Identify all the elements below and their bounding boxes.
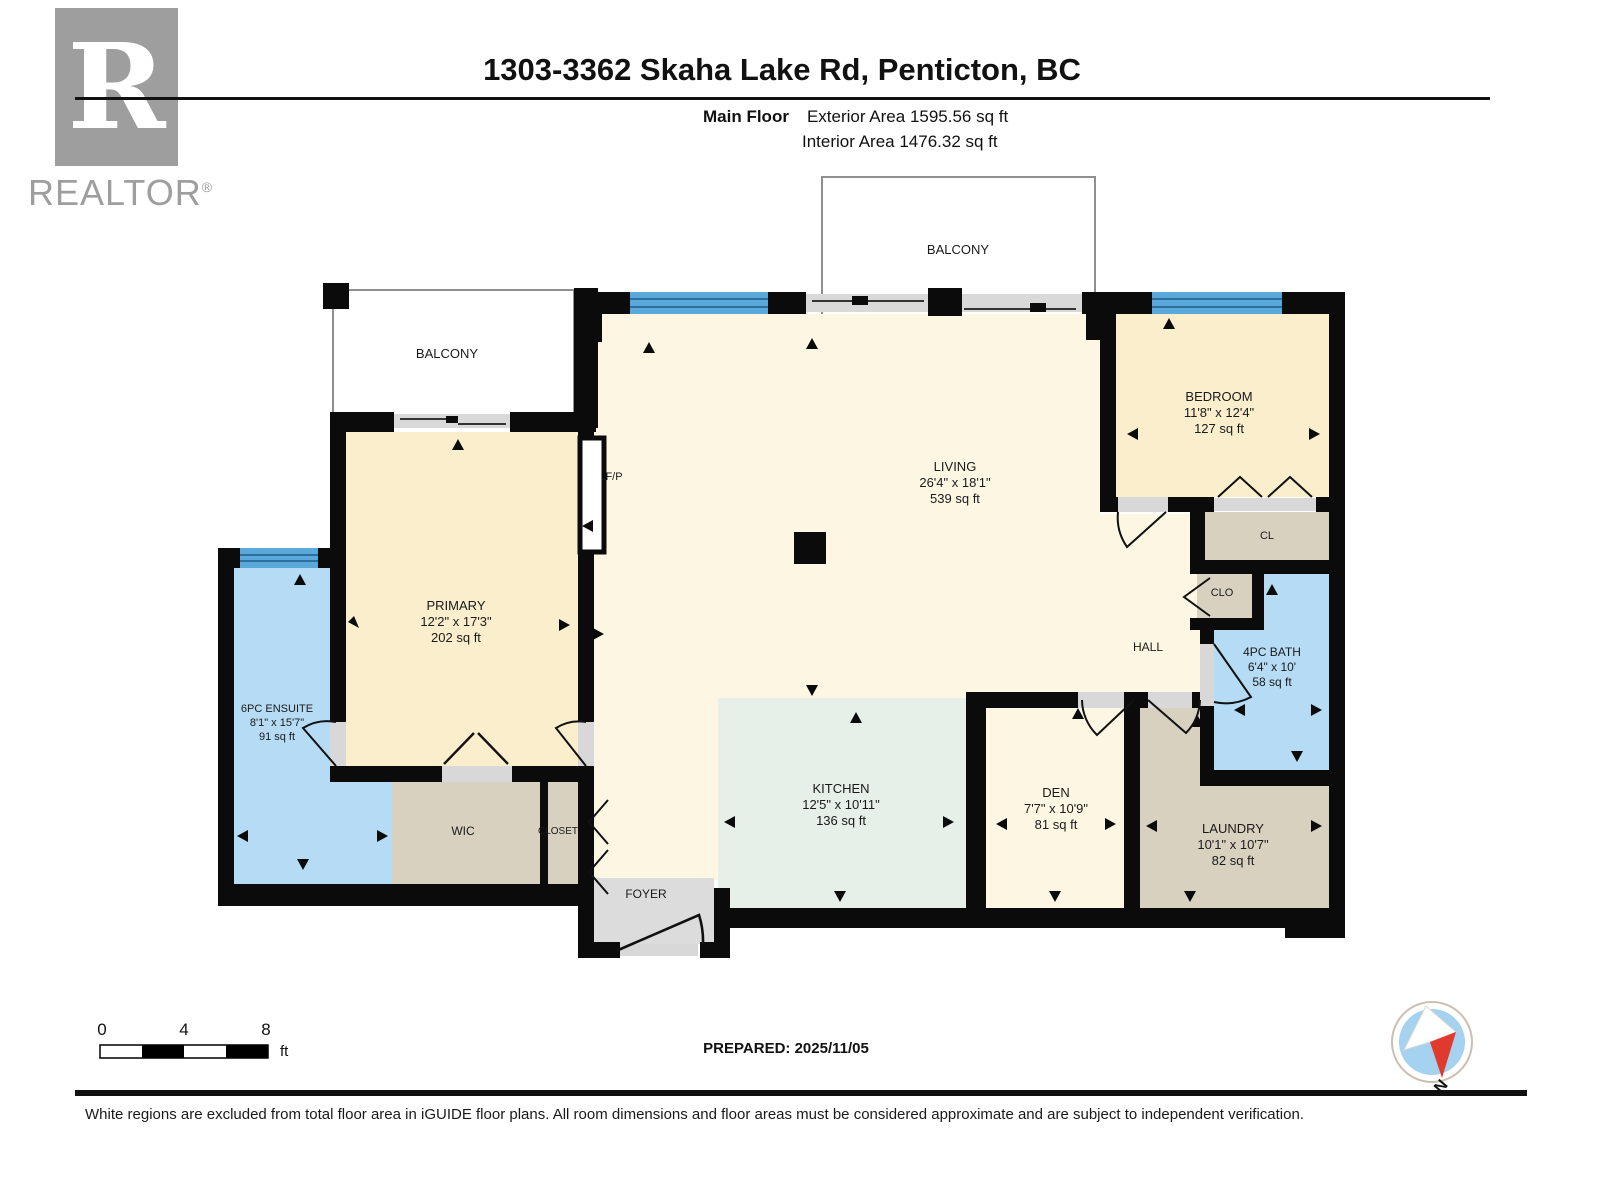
header-rule xyxy=(75,97,1490,100)
room-label-living: LIVING 26'4" x 18'1" 539 sq ft xyxy=(919,459,990,507)
room-name: CLOSET xyxy=(538,826,578,838)
room-label-hall: HALL xyxy=(1133,640,1163,655)
room-name: CL xyxy=(1260,529,1274,543)
room-dims: 26'4" x 18'1" xyxy=(919,475,990,491)
room-label-closet: CLOSET xyxy=(538,826,578,838)
disclaimer-text: White regions are excluded from total fl… xyxy=(85,1106,1545,1123)
floor-label: Main Floor xyxy=(703,107,789,126)
room-dims: 12'5" x 10'11" xyxy=(802,797,880,813)
room-area: 539 sq ft xyxy=(919,491,990,507)
realtor-logo-wordmark: REALTOR® xyxy=(28,172,213,214)
room-name: KITCHEN xyxy=(802,781,880,797)
room-dims: 7'7" x 10'9" xyxy=(1024,801,1088,817)
room-label-fireplace: F/P xyxy=(605,470,622,484)
room-name: F/P xyxy=(605,470,622,484)
room-name: LAUNDRY xyxy=(1197,821,1268,837)
scale-bar-graphic xyxy=(100,1045,268,1058)
floor-summary-line2: Interior Area 1476.32 sq ft xyxy=(802,132,998,152)
room-label-balcony-left: BALCONY xyxy=(416,346,478,362)
room-area: 82 sq ft xyxy=(1197,853,1268,869)
room-name: WIC xyxy=(451,824,474,839)
room-name: DEN xyxy=(1024,785,1088,801)
room-label-kitchen: KITCHEN 12'5" x 10'11" 136 sq ft xyxy=(802,781,880,829)
room-area: 127 sq ft xyxy=(1184,421,1254,437)
scale-unit: ft xyxy=(280,1043,288,1060)
room-name: 6PC ENSUITE xyxy=(241,702,313,716)
room-area: 58 sq ft xyxy=(1243,675,1301,690)
room-name: CLO xyxy=(1211,586,1234,600)
room-name: 4PC BATH xyxy=(1243,645,1301,660)
registered-mark: ® xyxy=(202,179,213,195)
room-label-balcony-top: BALCONY xyxy=(927,242,989,258)
room-dims: 12'2" x 17'3" xyxy=(420,614,491,630)
exterior-area: Exterior Area 1595.56 sq ft xyxy=(807,107,1008,126)
page-title: 1303-3362 Skaha Lake Rd, Penticton, BC xyxy=(483,52,1081,88)
room-area: 136 sq ft xyxy=(802,813,880,829)
room-area: 202 sq ft xyxy=(420,630,491,646)
room-dims: 11'8" x 12'4" xyxy=(1184,405,1254,421)
room-dims: 10'1" x 10'7" xyxy=(1197,837,1268,853)
room-label-cl: CL xyxy=(1260,529,1274,543)
room-label-bedroom: BEDROOM 11'8" x 12'4" 127 sq ft xyxy=(1184,389,1254,437)
scale-tick-0: 0 xyxy=(97,1020,106,1040)
floor-summary-line1: Main FloorExterior Area 1595.56 sq ft xyxy=(703,107,1008,127)
room-name: BALCONY xyxy=(927,242,989,258)
floor-plan-drawing xyxy=(0,0,1600,1200)
scale-tick-8: 8 xyxy=(261,1020,270,1040)
room-label-wic: WIC xyxy=(451,824,474,839)
room-dims: 6'4" x 10' xyxy=(1243,660,1301,675)
room-name: BEDROOM xyxy=(1184,389,1254,405)
room-name: FOYER xyxy=(625,887,666,902)
room-label-primary: PRIMARY 12'2" x 17'3" 202 sq ft xyxy=(420,598,491,646)
footer-rule xyxy=(75,1090,1527,1096)
fireplace-niche xyxy=(580,438,604,552)
room-name: BALCONY xyxy=(416,346,478,362)
floor-plan-page: R REALTOR® 1303-3362 Skaha Lake Rd, Pent… xyxy=(0,0,1600,1200)
room-label-clo: CLO xyxy=(1211,586,1234,600)
room-label-bath: 4PC BATH 6'4" x 10' 58 sq ft xyxy=(1243,645,1301,690)
room-name: LIVING xyxy=(919,459,990,475)
room-name: PRIMARY xyxy=(420,598,491,614)
room-area: 81 sq ft xyxy=(1024,817,1088,833)
room-label-laundry: LAUNDRY 10'1" x 10'7" 82 sq ft xyxy=(1197,821,1268,869)
room-name: HALL xyxy=(1133,640,1163,655)
room-label-den: DEN 7'7" x 10'9" 81 sq ft xyxy=(1024,785,1088,833)
realtor-logo: R xyxy=(55,8,178,166)
room-label-foyer: FOYER xyxy=(625,887,666,902)
room-label-ensuite: 6PC ENSUITE 8'1" x 15'7" 91 sq ft xyxy=(241,702,313,744)
interior-area: Interior Area 1476.32 sq ft xyxy=(802,132,998,151)
realtor-logo-letter: R xyxy=(67,28,165,146)
scale-tick-4: 4 xyxy=(179,1020,188,1040)
room-area: 91 sq ft xyxy=(241,730,313,744)
compass-icon xyxy=(1392,1002,1472,1082)
room-dims: 8'1" x 15'7" xyxy=(241,716,313,730)
prepared-date: PREPARED: 2025/11/05 xyxy=(703,1040,869,1057)
